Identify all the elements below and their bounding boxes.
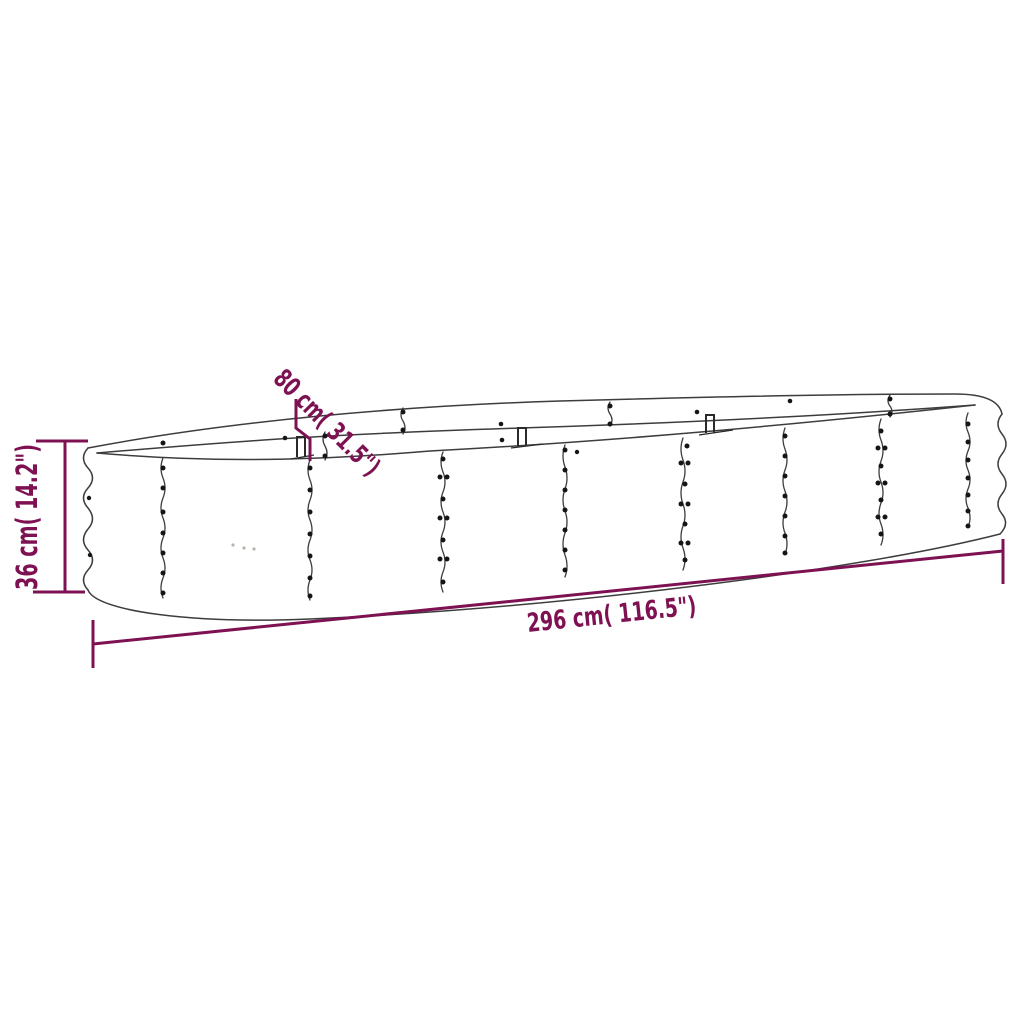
width-dimension: 80 cm( 31.5") bbox=[267, 364, 386, 483]
panel-specks bbox=[231, 543, 255, 550]
rim-seams bbox=[323, 395, 892, 460]
dimension-diagram: 80 cm( 31.5") 36 cm( 14.2") 296 cm( 116.… bbox=[0, 0, 1024, 1024]
length-dimension: 296 cm( 116.5") bbox=[93, 539, 1003, 668]
bed-outline bbox=[84, 394, 1007, 620]
width-dimension-label: 80 cm( 31.5") bbox=[267, 364, 386, 483]
height-dimension-label: 36 cm( 14.2") bbox=[10, 444, 44, 590]
raised-bed-drawing bbox=[84, 394, 1007, 620]
height-dimension: 36 cm( 14.2") bbox=[10, 441, 88, 592]
diagram-canvas: 80 cm( 31.5") 36 cm( 14.2") 296 cm( 116.… bbox=[0, 0, 1024, 1024]
